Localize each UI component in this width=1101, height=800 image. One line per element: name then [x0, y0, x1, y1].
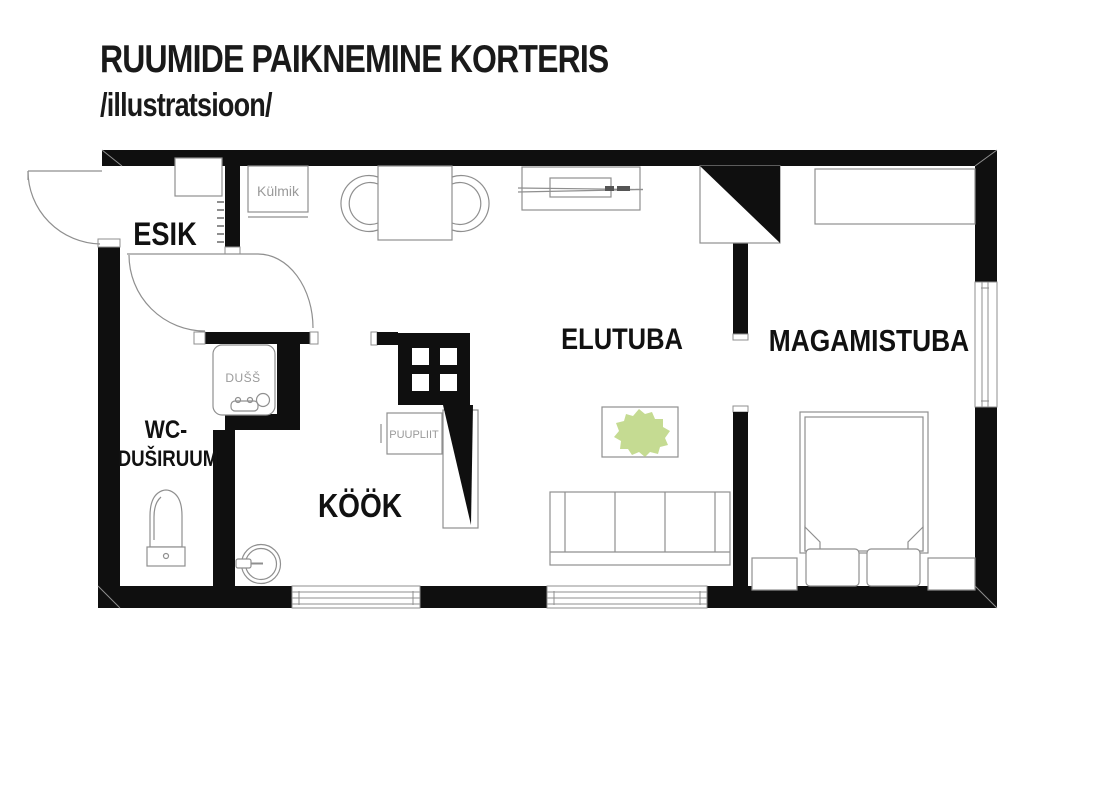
sink-tap	[236, 559, 251, 568]
wall-right-upper	[975, 150, 997, 282]
wall-cap	[371, 332, 377, 345]
wall-cap	[225, 247, 240, 254]
corner-closet-wedge	[700, 166, 780, 243]
toilet	[147, 490, 185, 566]
chair-left	[341, 176, 378, 232]
pillow-left	[806, 549, 859, 586]
wood-stove: PUUPLIIT	[381, 413, 442, 454]
plant-table	[602, 407, 678, 457]
wood-stove-label: PUUPLIIT	[389, 429, 439, 441]
shower-cabin: DUŠŠ	[213, 345, 275, 415]
wall-elutuba-magamistuba-upper	[733, 243, 748, 334]
kitchen-door	[258, 254, 313, 328]
toilet-bowl	[150, 490, 182, 547]
wc-door	[127, 254, 258, 331]
stove-flue	[443, 405, 478, 528]
wall-cap	[98, 239, 120, 247]
fridge-label: Külmik	[257, 183, 300, 199]
sofa-body	[550, 492, 730, 565]
window-living-room	[547, 586, 707, 608]
toilet-tank	[147, 547, 185, 566]
entrance-door	[28, 171, 102, 244]
sink	[236, 545, 281, 584]
wall-esik-kook-stub	[225, 150, 240, 247]
wall-bottom-mid	[420, 586, 547, 608]
room-label-wc-line1: WC-	[145, 415, 187, 443]
dining-table	[378, 166, 452, 240]
tv-bench	[518, 167, 643, 210]
chimney	[371, 332, 470, 405]
entrance-door-swing-arc	[28, 171, 100, 244]
sofa	[550, 492, 730, 565]
page-title: RUUMIDE PAIKNEMINE KORTERIS /illustratsi…	[100, 37, 609, 124]
wall-cap	[733, 406, 748, 412]
room-label-esik: ESIK	[133, 217, 197, 253]
room-label-magamistuba: MAGAMISTUBA	[769, 324, 969, 358]
dining-table-top	[378, 166, 452, 240]
window-bedroom	[975, 282, 997, 407]
nightstand-left	[752, 558, 797, 590]
wall-elutuba-magamistuba-lower	[733, 412, 748, 586]
bed	[800, 412, 928, 586]
room-label-elutuba: ELUTUBA	[561, 322, 683, 355]
wall-left	[98, 247, 120, 608]
window-kitchen	[292, 586, 420, 608]
floor-plan-svg: RUUMIDE PAIKNEMINE KORTERIS /illustratsi…	[0, 0, 1101, 800]
wall-right-lower	[975, 407, 997, 608]
wall-cap	[733, 334, 748, 340]
shower-label: DUŠŠ	[225, 370, 260, 385]
fridge: Külmik	[248, 166, 308, 217]
floor-plan-page: RUUMIDE PAIKNEMINE KORTERIS /illustratsi…	[0, 0, 1101, 800]
title-line-2: /illustratsioon/	[100, 88, 273, 124]
title-line-1: RUUMIDE PAIKNEMINE KORTERIS	[100, 37, 609, 81]
kitchen-door-swing-arc	[258, 254, 313, 328]
wall-cap	[194, 332, 205, 344]
tv-device-dash	[605, 186, 614, 191]
wall-cap	[310, 332, 318, 344]
hallway-cabinet	[175, 158, 222, 196]
room-label-wc-line2: DUŠIRUUM	[118, 446, 219, 472]
tv-device-dash	[617, 186, 630, 191]
pillow-right	[867, 549, 920, 586]
nightstand-right	[928, 558, 975, 590]
coat-hooks	[217, 202, 224, 242]
room-label-kook: KÖÖK	[318, 487, 402, 525]
corner-closet	[700, 166, 780, 243]
wall-shower-bottom	[225, 414, 300, 430]
wc-door-swing-arc	[129, 255, 205, 331]
wall-bottom-left	[98, 586, 292, 608]
bed-blanket-outer	[800, 412, 928, 553]
bedroom-wardrobe	[815, 169, 975, 224]
chair-right	[452, 176, 489, 232]
